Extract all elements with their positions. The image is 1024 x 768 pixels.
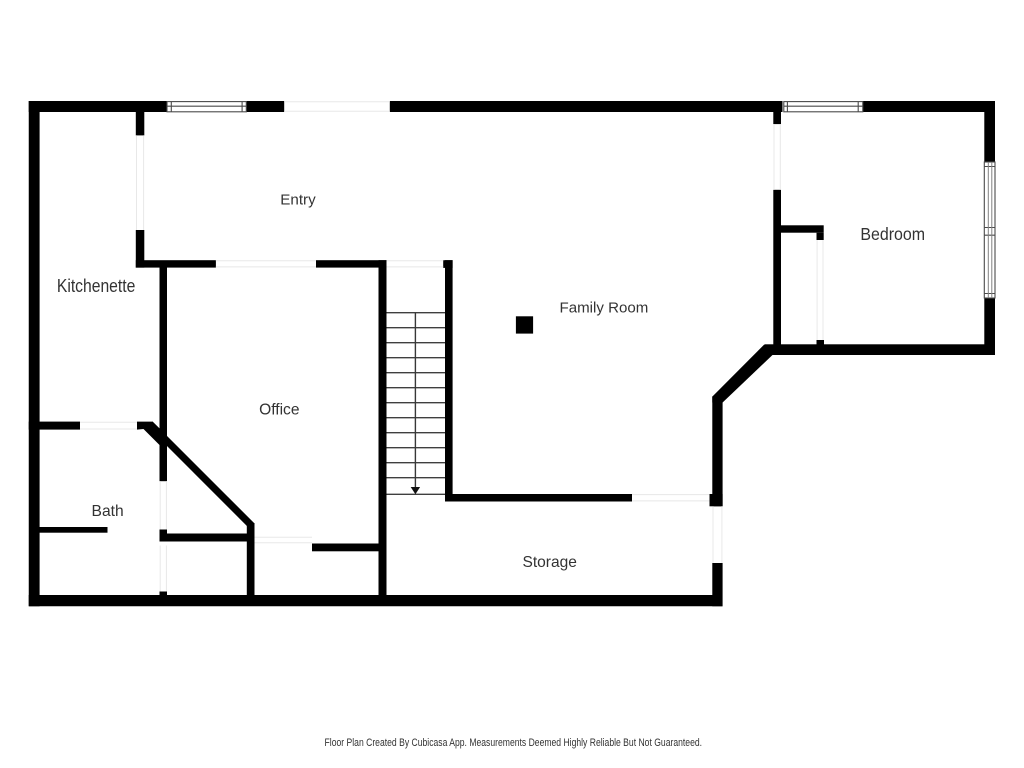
svg-text:Office: Office: [259, 401, 299, 418]
svg-text:Floor Plan Created By Cubicasa: Floor Plan Created By Cubicasa App. Meas…: [325, 737, 703, 749]
svg-text:Family Room: Family Room: [560, 300, 649, 317]
svg-text:Entry: Entry: [280, 191, 316, 208]
svg-text:Storage: Storage: [523, 554, 577, 571]
svg-text:Bath: Bath: [92, 503, 124, 520]
svg-text:Kitchenette: Kitchenette: [57, 276, 135, 296]
svg-text:Bedroom: Bedroom: [860, 224, 925, 244]
